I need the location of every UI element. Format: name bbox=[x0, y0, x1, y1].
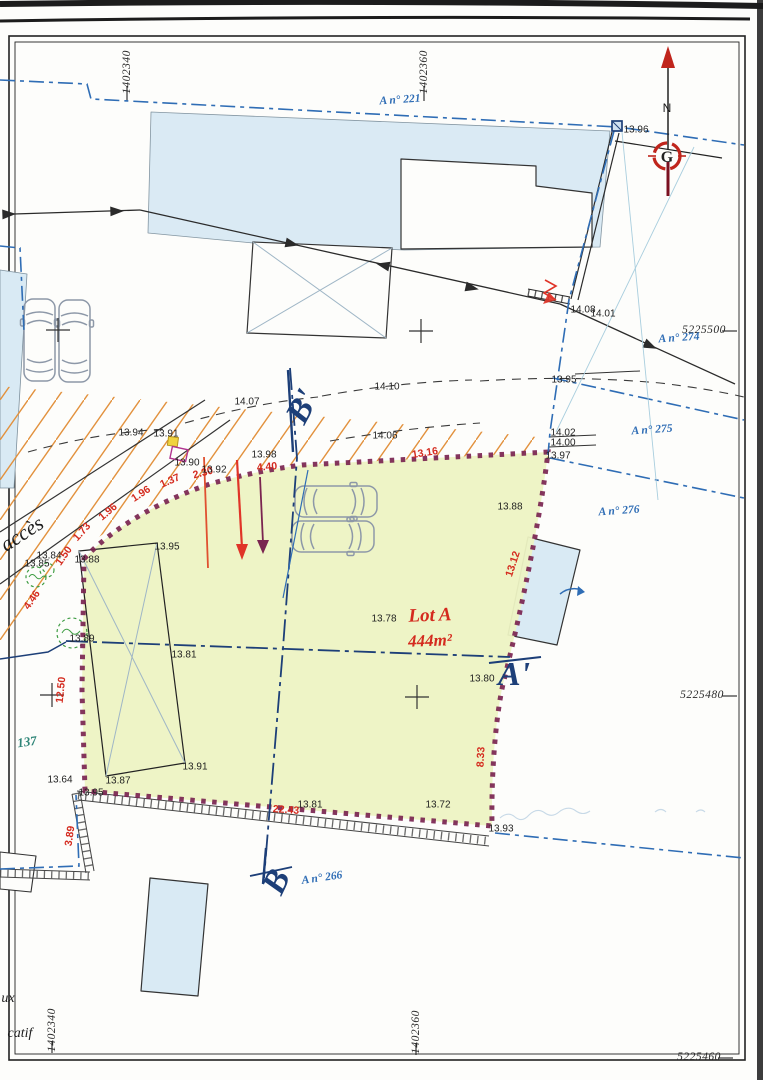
trees bbox=[26, 563, 87, 648]
leader-ticks bbox=[549, 371, 640, 447]
plan-linework: N G bbox=[0, 0, 763, 1080]
crossed-building-top bbox=[247, 242, 392, 338]
compass-north-label: N bbox=[663, 101, 672, 115]
cadastral-plan: N G Lot A 444m² 140234014023605225500522… bbox=[0, 0, 763, 1080]
north-compass: N G bbox=[615, 46, 722, 196]
geometer-logo-letter: G bbox=[661, 149, 674, 166]
